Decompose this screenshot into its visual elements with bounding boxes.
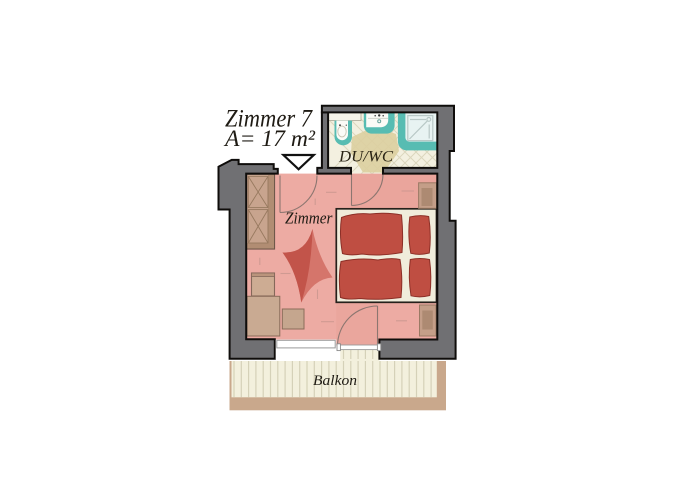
svg-text:Zimmer: Zimmer <box>285 209 333 228</box>
svg-text:Balkon: Balkon <box>313 373 357 389</box>
svg-text:DU/WC: DU/WC <box>338 149 393 166</box>
svg-text:A= 17 m²: A= 17 m² <box>223 126 316 151</box>
